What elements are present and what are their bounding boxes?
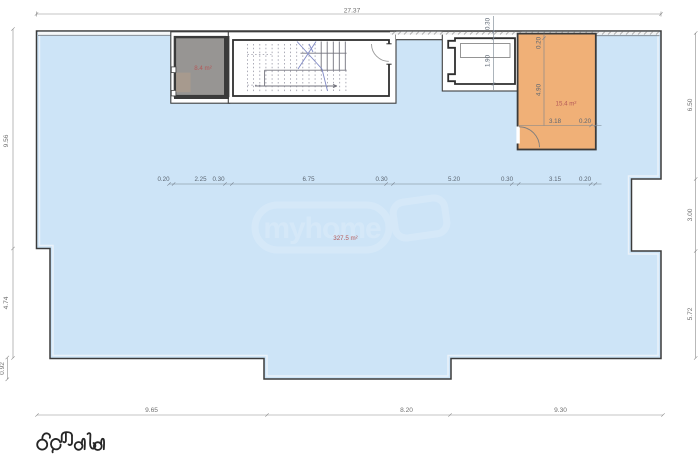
svg-text:1.90: 1.90 <box>485 54 492 67</box>
svg-text:6.50: 6.50 <box>687 98 694 111</box>
svg-text:8.4 m²: 8.4 m² <box>194 65 212 72</box>
svg-text:0.30: 0.30 <box>485 17 492 30</box>
svg-text:0.30: 0.30 <box>212 176 225 183</box>
svg-text:0.20: 0.20 <box>157 176 170 183</box>
svg-text:4.90: 4.90 <box>536 83 543 96</box>
svg-text:9.30: 9.30 <box>554 407 567 414</box>
svg-text:6.75: 6.75 <box>302 176 315 183</box>
svg-text:5.72: 5.72 <box>687 307 694 320</box>
svg-text:5.20: 5.20 <box>448 176 461 183</box>
svg-text:27.37: 27.37 <box>344 8 361 15</box>
svg-text:9.65: 9.65 <box>145 407 158 414</box>
svg-text:0.30: 0.30 <box>375 176 388 183</box>
svg-text:0.20: 0.20 <box>536 36 543 49</box>
svg-text:15.4 m²: 15.4 m² <box>556 101 577 108</box>
svg-text:myhome: myhome <box>263 212 381 245</box>
svg-text:2.25: 2.25 <box>194 176 207 183</box>
svg-text:327.5 m²: 327.5 m² <box>333 235 357 242</box>
svg-text:0.30: 0.30 <box>501 176 514 183</box>
svg-text:3.18: 3.18 <box>549 118 562 125</box>
svg-text:0.20: 0.20 <box>579 176 592 183</box>
svg-text:0.20: 0.20 <box>579 118 592 125</box>
svg-text:4.74: 4.74 <box>3 296 10 309</box>
svg-text:9.56: 9.56 <box>3 134 10 147</box>
svg-text:3.15: 3.15 <box>549 176 562 183</box>
svg-text:0.92: 0.92 <box>0 362 6 375</box>
svg-text:3.00: 3.00 <box>687 208 694 221</box>
svg-text:8.20: 8.20 <box>400 407 413 414</box>
